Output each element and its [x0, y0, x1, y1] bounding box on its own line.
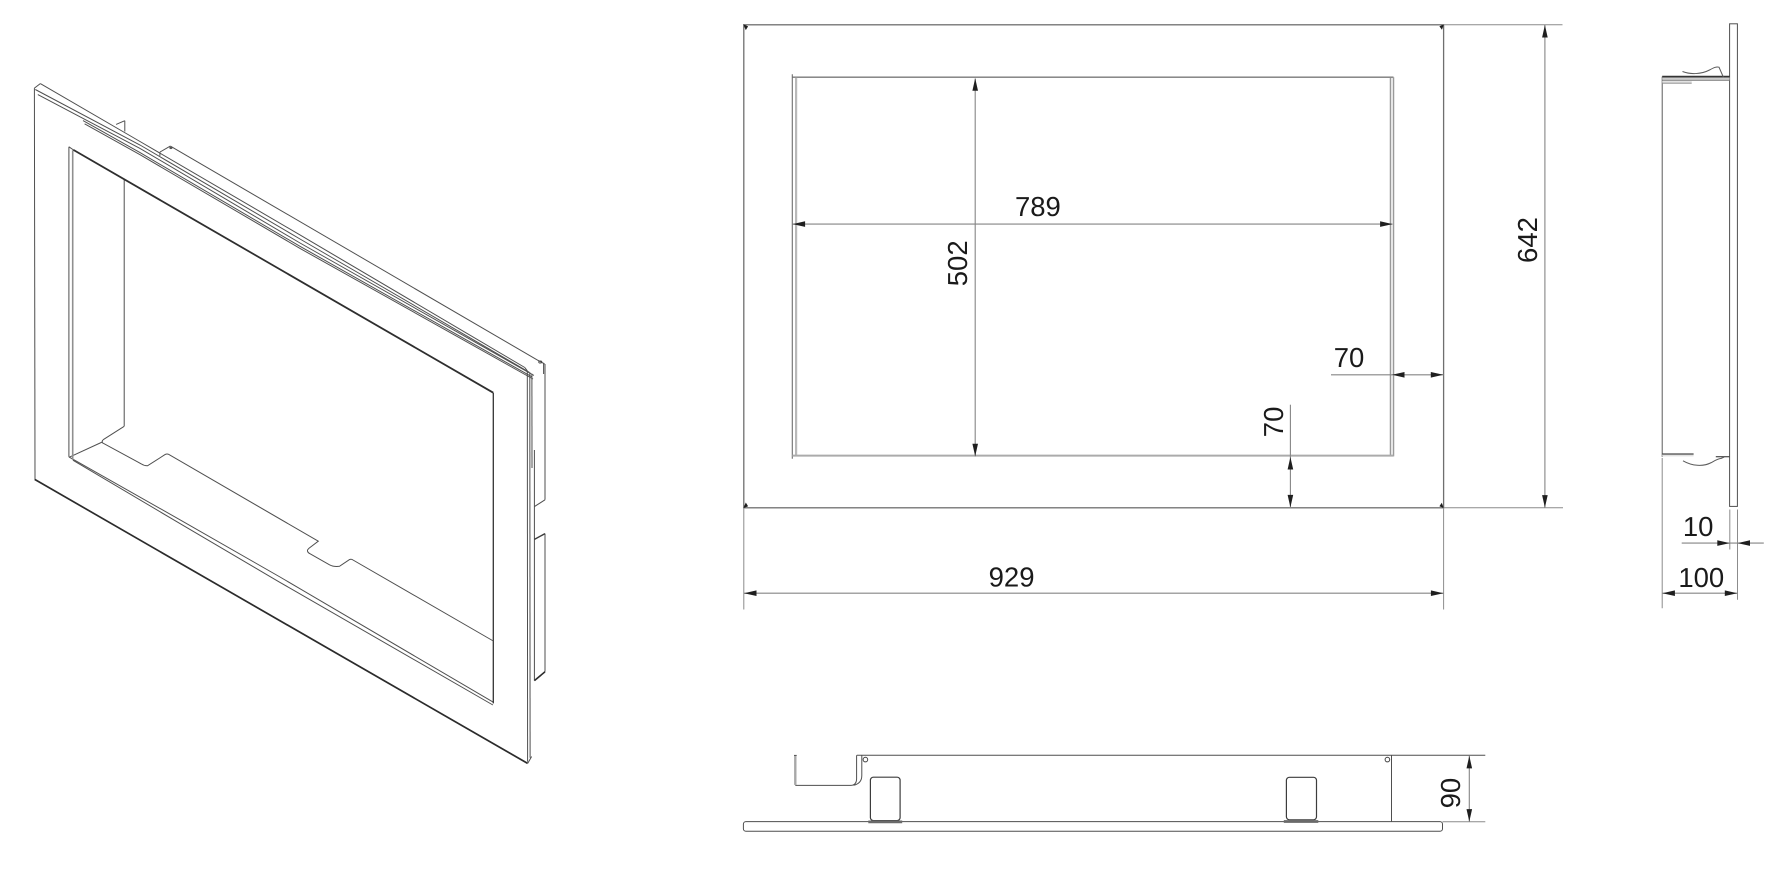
svg-text:70: 70: [1258, 407, 1289, 438]
svg-text:100: 100: [1678, 562, 1724, 593]
svg-text:642: 642: [1512, 217, 1543, 263]
svg-text:90: 90: [1435, 778, 1466, 809]
svg-text:929: 929: [989, 562, 1035, 593]
svg-text:70: 70: [1334, 342, 1365, 373]
svg-text:10: 10: [1683, 511, 1714, 542]
svg-text:789: 789: [1015, 191, 1061, 222]
svg-text:502: 502: [942, 240, 973, 286]
